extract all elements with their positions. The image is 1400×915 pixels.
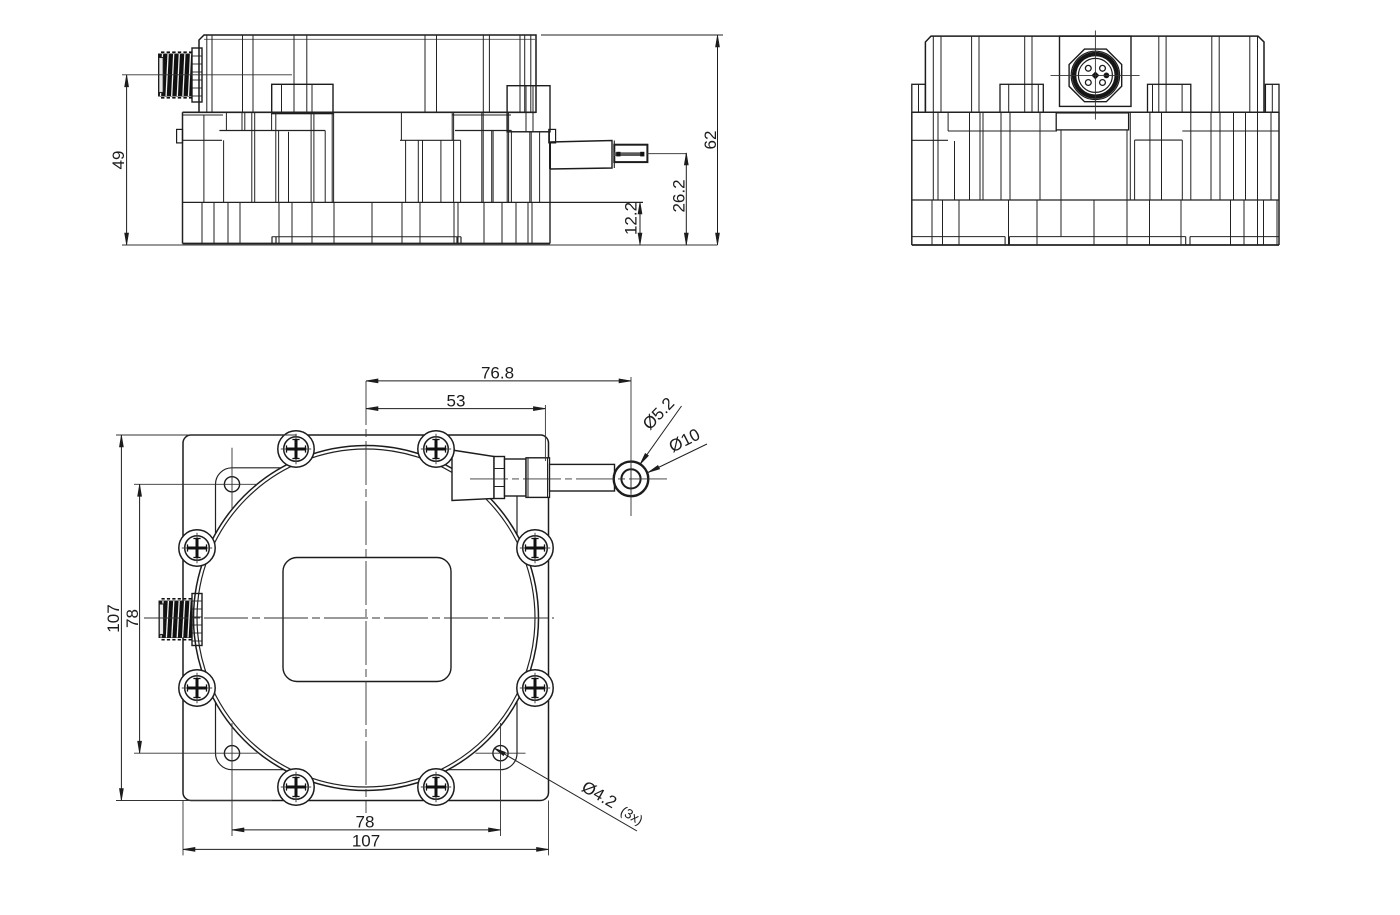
svg-text:Ø4.2: Ø4.2 <box>579 777 620 812</box>
svg-text:78: 78 <box>123 609 142 628</box>
svg-text:107: 107 <box>352 832 380 851</box>
svg-text:Ø10: Ø10 <box>666 425 703 457</box>
svg-text:78: 78 <box>356 813 375 832</box>
svg-text:107: 107 <box>104 604 123 632</box>
svg-text:12.2: 12.2 <box>622 202 641 235</box>
svg-text:62: 62 <box>701 131 720 150</box>
svg-text:49: 49 <box>109 151 128 170</box>
svg-text:76.8: 76.8 <box>481 364 514 383</box>
svg-text:(3x): (3x) <box>618 803 646 828</box>
svg-text:53: 53 <box>447 391 466 410</box>
svg-text:26.2: 26.2 <box>670 179 689 212</box>
svg-text:Ø5.2: Ø5.2 <box>639 394 678 434</box>
